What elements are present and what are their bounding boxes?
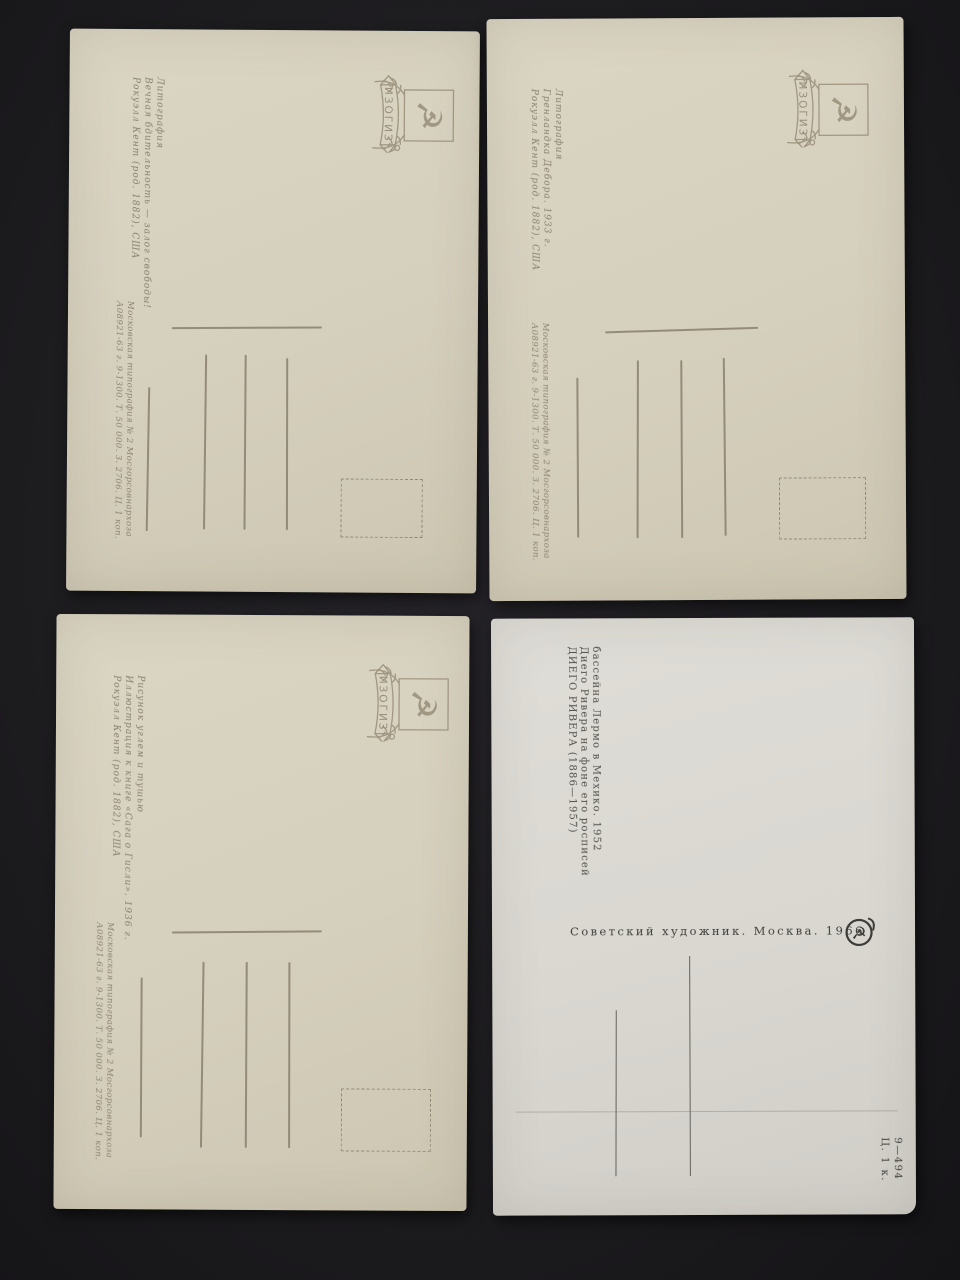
imprint-line: Московская типография № 2 Мосгорсовнархо… [103,922,115,1160]
caption-line: Рокуэлл Кент (род. 1882), США [528,89,541,271]
imprint-text: А08921-63 г. 9-1300. Т. 50 000. З. 2706.… [528,323,551,561]
faint-crease-line [516,1110,898,1112]
writing-rule [146,387,151,531]
writing-rule [576,378,579,538]
imprint-line: Московская типография № 2 Мосгорсовнархо… [122,301,135,539]
writing-rule [680,360,683,538]
izogiz-emblem: ☭ ИЗОГИЗ [349,661,453,742]
emblem-label: ИЗОГИЗ [376,676,388,732]
caption-line: Иллюстрация к книге «Сага о Гисли». 1936… [121,675,134,941]
writing-rule [288,962,290,1148]
hammer-sickle-icon: ☭ [851,924,866,944]
stamp-box [341,1088,431,1151]
imprint-text: А08921-63 г. 9-1300. Т. 50 000. З. 2706.… [111,301,135,539]
caption-line: Рокуэлл Кент (род. 1882), США [109,675,122,941]
hammer-sickle-icon: ☭ [408,100,448,131]
postcard-bottom-right: ДИЕГО РИВЕРА (1886—1957) Диего Ривера на… [491,617,916,1215]
imprint-line: Московская типография № 2 Мосгорсовнархо… [539,323,551,561]
writing-rule [689,956,691,1176]
caption-text: Рокуэлл Кент (род. 1882), США Вечная бди… [128,77,166,309]
emblem-label: ИЗОГИЗ [796,81,808,137]
postcard-top-left: ☭ ИЗОГИЗ Рокуэлл Кент (род. 1882), США В… [66,29,480,594]
caption-line: Гренландка Дебора. 1933 г. [540,89,553,271]
writing-rule [140,977,143,1137]
writing-rule [286,358,288,530]
caption-text: Рокуэлл Кент (род. 1882), США Гренландка… [528,89,565,271]
izogiz-emblem: ☭ ИЗОГИЗ [354,73,459,154]
postcard-top-right: ☭ ИЗОГИЗ Рокуэлл Кент (род. 1882), США Г… [486,17,906,601]
caption-text: Рокуэлл Кент (род. 1882), США Иллюстраци… [109,675,146,941]
caption-line: Литография [152,77,166,309]
price: Ц. 1 к. [878,1137,891,1182]
order-number-text: 9—494 Ц. 1 к. [878,1137,904,1182]
order-number: 9—494 [891,1137,904,1182]
writing-rule [203,355,207,530]
caption-line: Диего Ривера на фоне его росписей [577,646,590,877]
caption-line: бассейна Лермо в Мехико. 1952 [589,646,602,877]
stamp-box [340,478,422,538]
caption-line: Литография [552,89,565,271]
publisher-line: Советский художник. Москва. 1966 [570,923,865,938]
writing-rule [723,358,727,536]
writing-rule [245,962,248,1148]
emblem-label: ИЗОГИЗ [382,87,394,143]
address-rule [605,327,758,334]
caption-line: Вечная бдительность — залог свободы! [140,77,154,309]
imprint-text: А08921-63 г. 9-1300. Т. 50 000. З. 2706.… [92,922,115,1160]
caption-text: ДИЕГО РИВЕРА (1886—1957) Диего Ривера на… [565,646,602,877]
hammer-sickle-icon: ☭ [403,689,443,720]
imprint-line: А08921-63 г. 9-1300. Т. 50 000. З. 2706.… [92,922,104,1160]
caption-line: Рокуэлл Кент (род. 1882), США [128,77,142,309]
writing-rule [200,962,205,1148]
writing-rule [637,360,639,538]
caption-line: Рисунок углем и тушью [133,675,146,941]
izogiz-emblem: ☭ ИЗОГИЗ [769,67,873,148]
imprint-line: А08921-63 г. 9-1300. Т. 50 000. З. 2706.… [528,323,540,561]
writing-rule [615,1010,616,1176]
address-rule [172,930,322,933]
caption-line: ДИЕГО РИВЕРА (1886—1957) [565,646,578,877]
sovetsky-khudozhnik-logo: ☭ [842,913,878,953]
hammer-sickle-icon: ☭ [823,94,863,125]
stamp-box [779,477,866,539]
writing-rule [243,355,246,530]
postcard-bottom-left: ☭ ИЗОГИЗ Рокуэлл Кент (род. 1882), США И… [53,614,469,1211]
imprint-line: А08921-63 г. 9-1300. Т. 50 000. З. 2706.… [111,301,124,539]
address-rule [172,327,322,330]
